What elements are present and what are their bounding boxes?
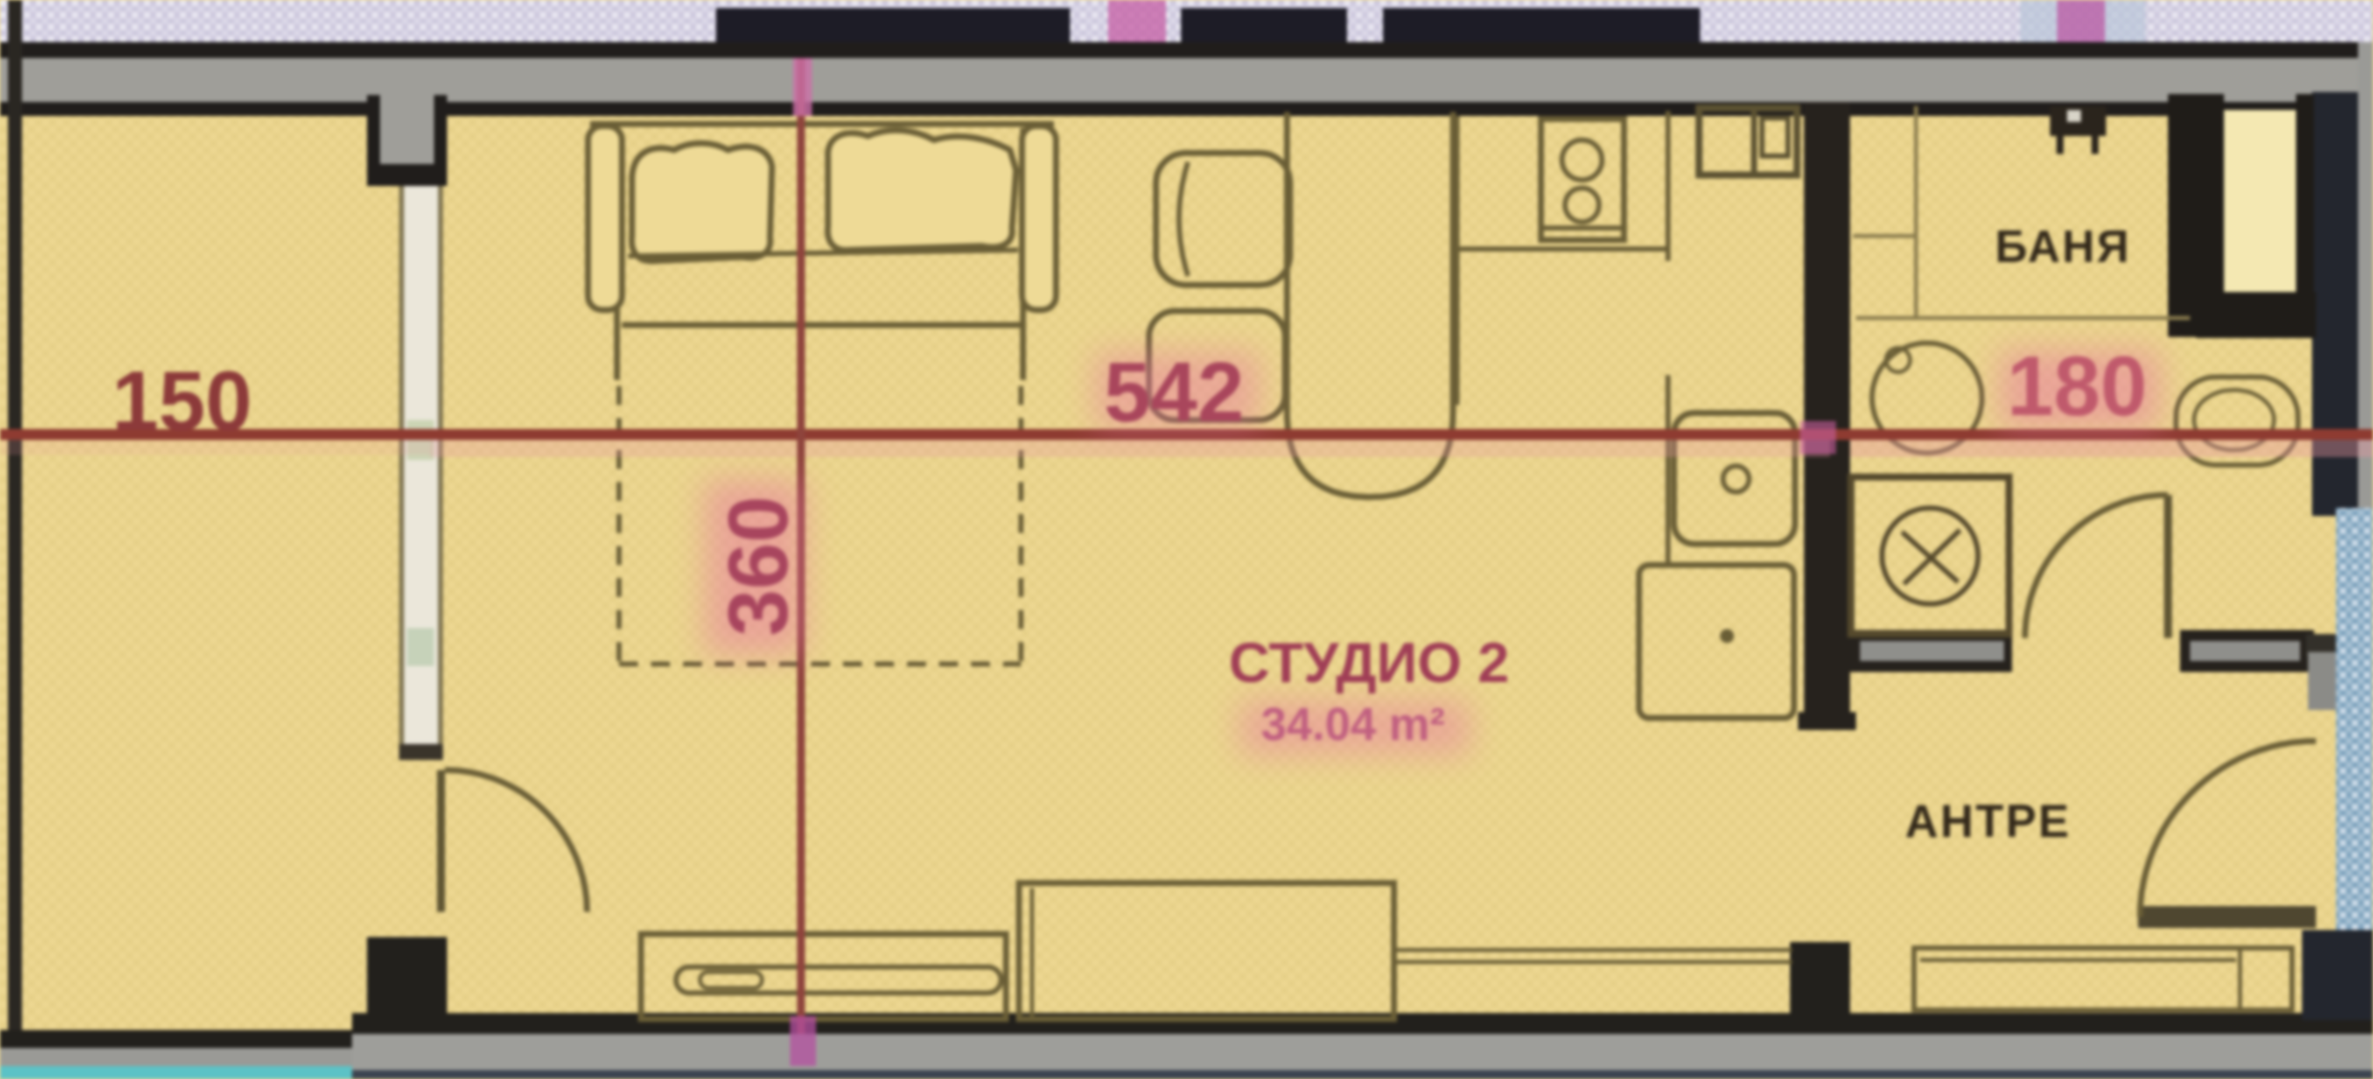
- svg-text:СТУДИО 2: СТУДИО 2: [1229, 631, 1510, 695]
- svg-text:150: 150: [112, 354, 252, 448]
- svg-text:БАНЯ: БАНЯ: [1995, 221, 2131, 272]
- svg-text:360: 360: [711, 496, 805, 636]
- svg-text:АНТРЕ: АНТРЕ: [1905, 795, 2071, 847]
- svg-text:180: 180: [2007, 339, 2147, 433]
- svg-text:542: 542: [1104, 345, 1244, 439]
- svg-text:34.04 m²: 34.04 m²: [1261, 698, 1445, 750]
